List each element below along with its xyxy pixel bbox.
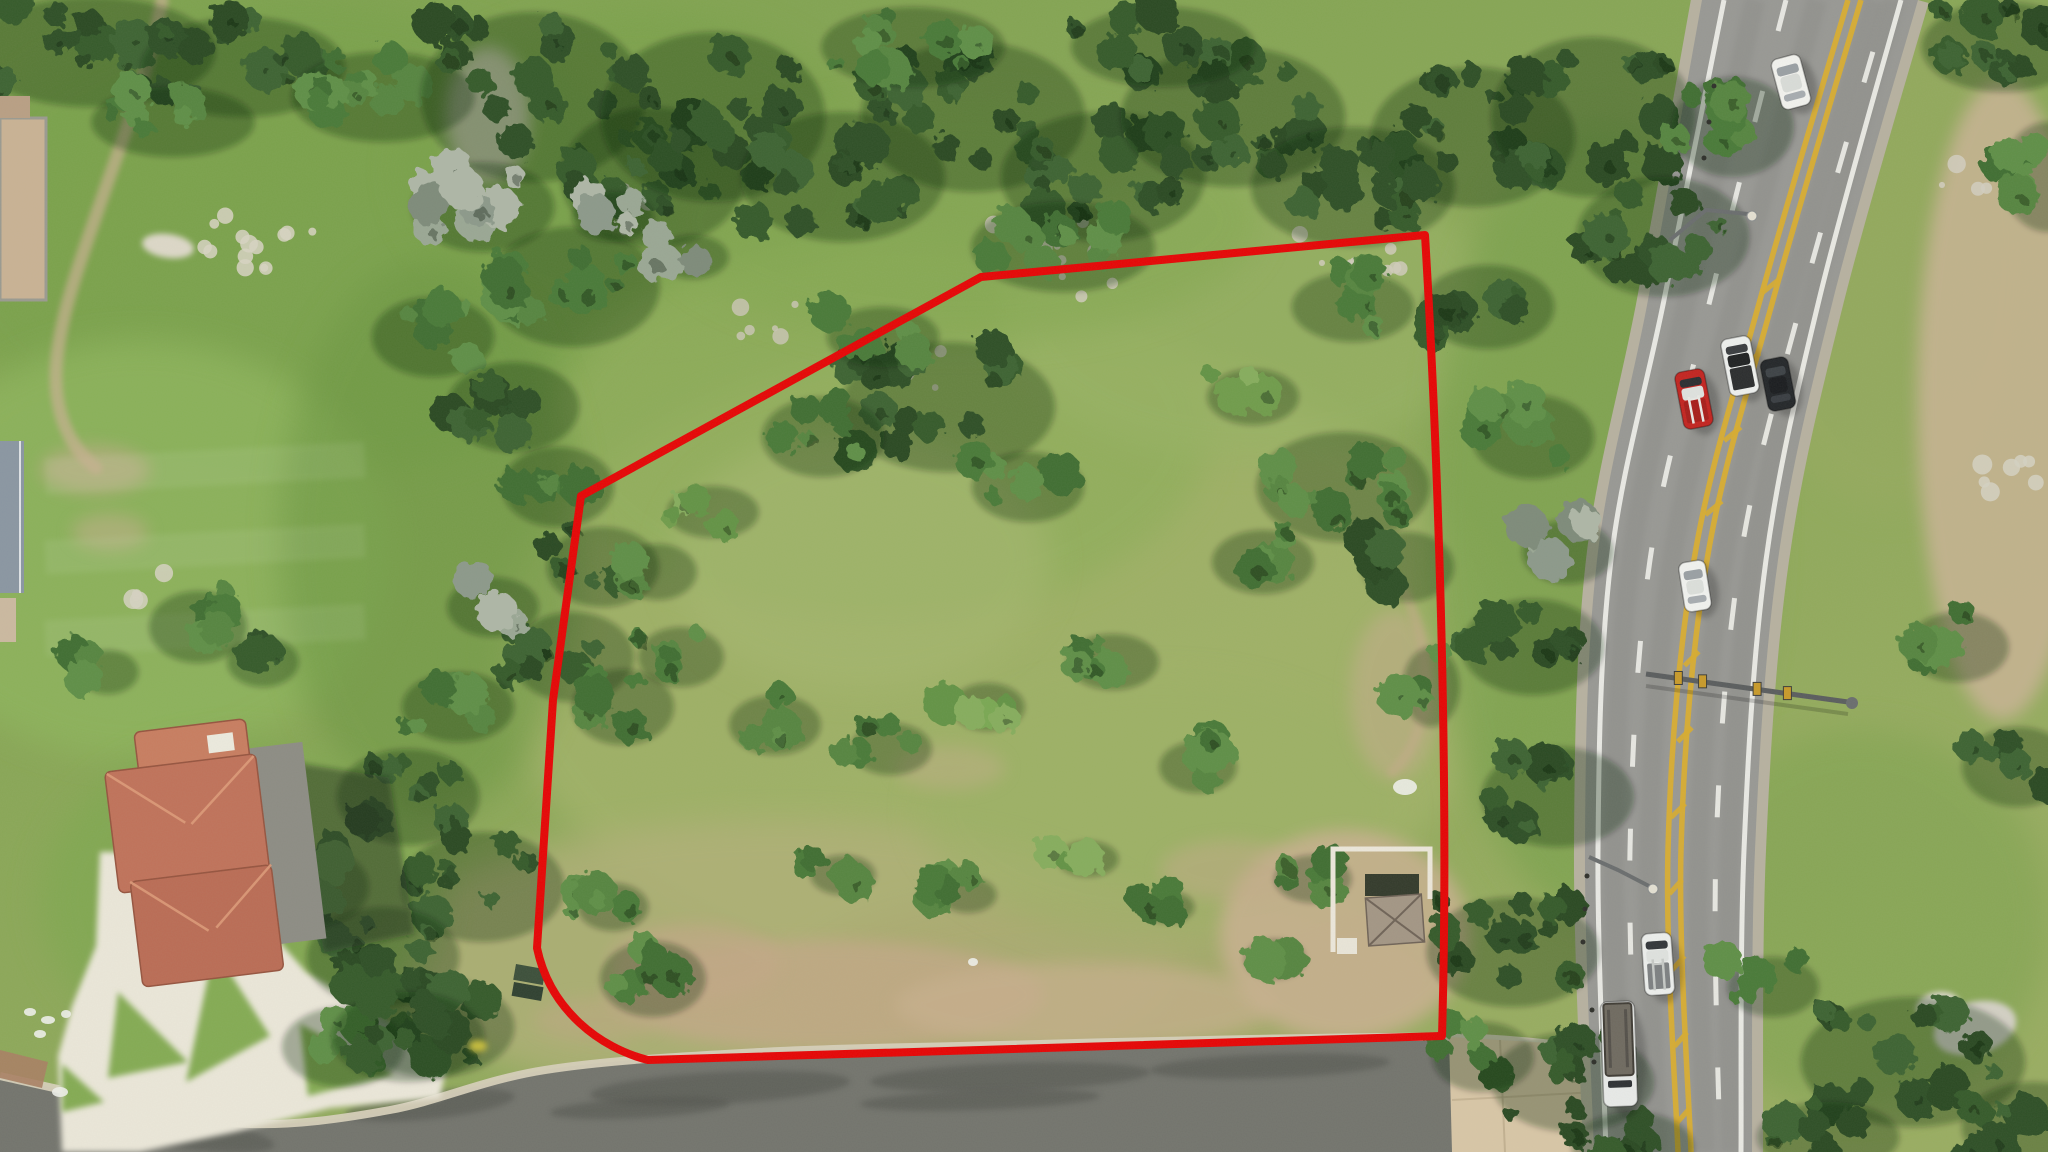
aerial-photo xyxy=(0,0,2048,1152)
aerial-photo-canvas xyxy=(0,0,2048,1152)
photo-grain xyxy=(0,0,2048,1152)
